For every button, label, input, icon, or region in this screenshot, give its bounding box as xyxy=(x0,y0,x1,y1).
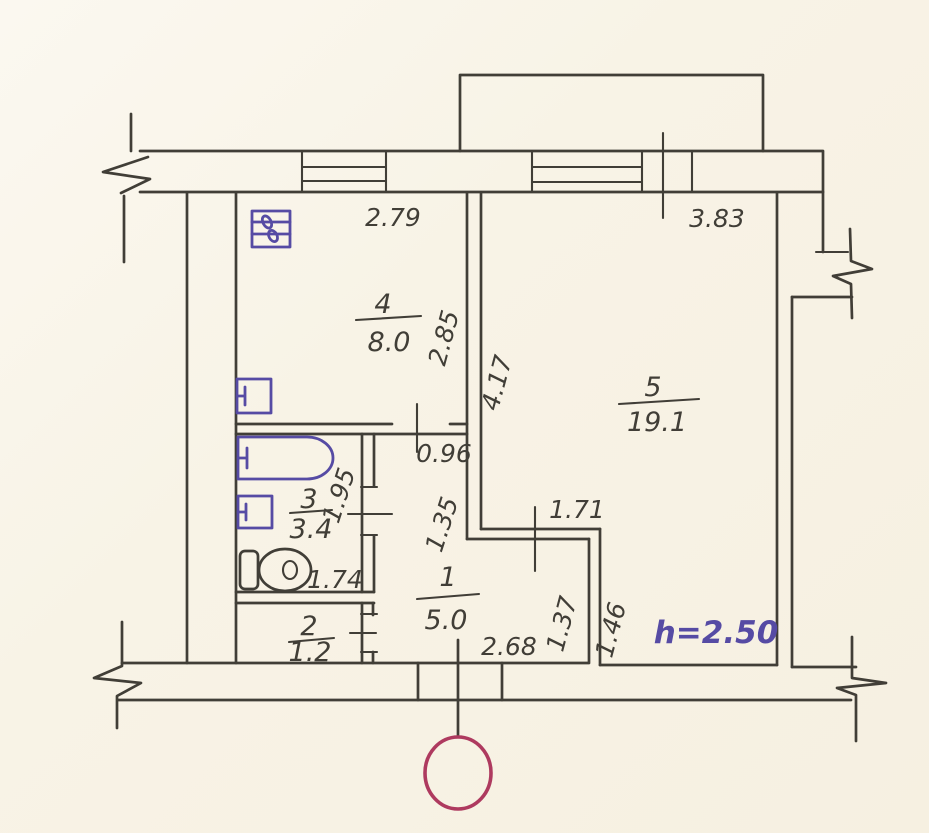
stove-icon xyxy=(252,211,290,247)
window-icon xyxy=(532,151,642,192)
floor-plan-drawing: 4 8.0 5 19.1 3 3.4 1 5.0 2 1.2 2.79 3.83… xyxy=(0,0,929,833)
room-4-number: 4 xyxy=(374,289,391,320)
entrance-door-jambs xyxy=(418,663,502,700)
room-1-number: 1 xyxy=(439,562,456,593)
dim-nook-depth-right: 1.46 xyxy=(590,599,632,660)
wall-break-icon xyxy=(94,622,141,728)
dim-hallway-width: 2.68 xyxy=(481,632,537,661)
floor-plan-page: 4 8.0 5 19.1 3 3.4 1 5.0 2 1.2 2.79 3.83… xyxy=(0,0,929,833)
wall-break-icon xyxy=(833,229,872,318)
dimension-labels: 2.79 3.83 2.85 4.17 0.96 1.35 1.71 1.37 … xyxy=(307,203,778,661)
room-5-number: 5 xyxy=(644,372,661,403)
room-1-area: 5.0 xyxy=(425,605,468,636)
dim-kitchen-depth: 2.85 xyxy=(423,307,465,368)
dim-nook-depth-left: 1.37 xyxy=(541,593,583,654)
room-2-area: 1.2 xyxy=(289,637,332,668)
kitchen-sink-icon xyxy=(237,379,271,413)
dim-corridor-width: 0.96 xyxy=(416,439,472,468)
kitchen-bottom-wall xyxy=(236,424,467,434)
dim-kitchen-width: 2.79 xyxy=(365,203,421,232)
entrance-marker-icon xyxy=(425,737,491,809)
dim-nook-width: 1.71 xyxy=(549,495,605,524)
room-1-fraction-line xyxy=(417,594,479,599)
toilet-tank xyxy=(240,551,258,589)
bathtub-icon xyxy=(238,437,333,479)
wall-break-icon xyxy=(103,157,150,262)
balcony-line xyxy=(460,75,763,151)
toilet-bowl xyxy=(259,549,311,591)
dim-living-width: 3.83 xyxy=(689,204,745,233)
dim-bathroom-width: 1.74 xyxy=(307,565,363,594)
bathtub-body xyxy=(238,437,333,479)
toilet-drain xyxy=(283,561,297,579)
window-icon xyxy=(302,151,386,192)
room-5-area: 19.1 xyxy=(627,407,687,438)
toilet-icon xyxy=(240,549,311,591)
room-4-area: 8.0 xyxy=(368,327,411,358)
washbasin-icon xyxy=(238,496,272,528)
bathroom-door-jambs xyxy=(361,487,377,535)
nook-wall-horizontal xyxy=(467,529,600,539)
windows xyxy=(302,133,692,218)
dim-corridor-length: 1.35 xyxy=(420,493,465,555)
entrance-marker xyxy=(425,640,491,809)
ceiling-height-label: h=2.50 xyxy=(654,615,779,651)
wall-break-icon xyxy=(837,637,886,741)
balcony-outline xyxy=(460,75,763,151)
stove-burner xyxy=(267,229,280,243)
